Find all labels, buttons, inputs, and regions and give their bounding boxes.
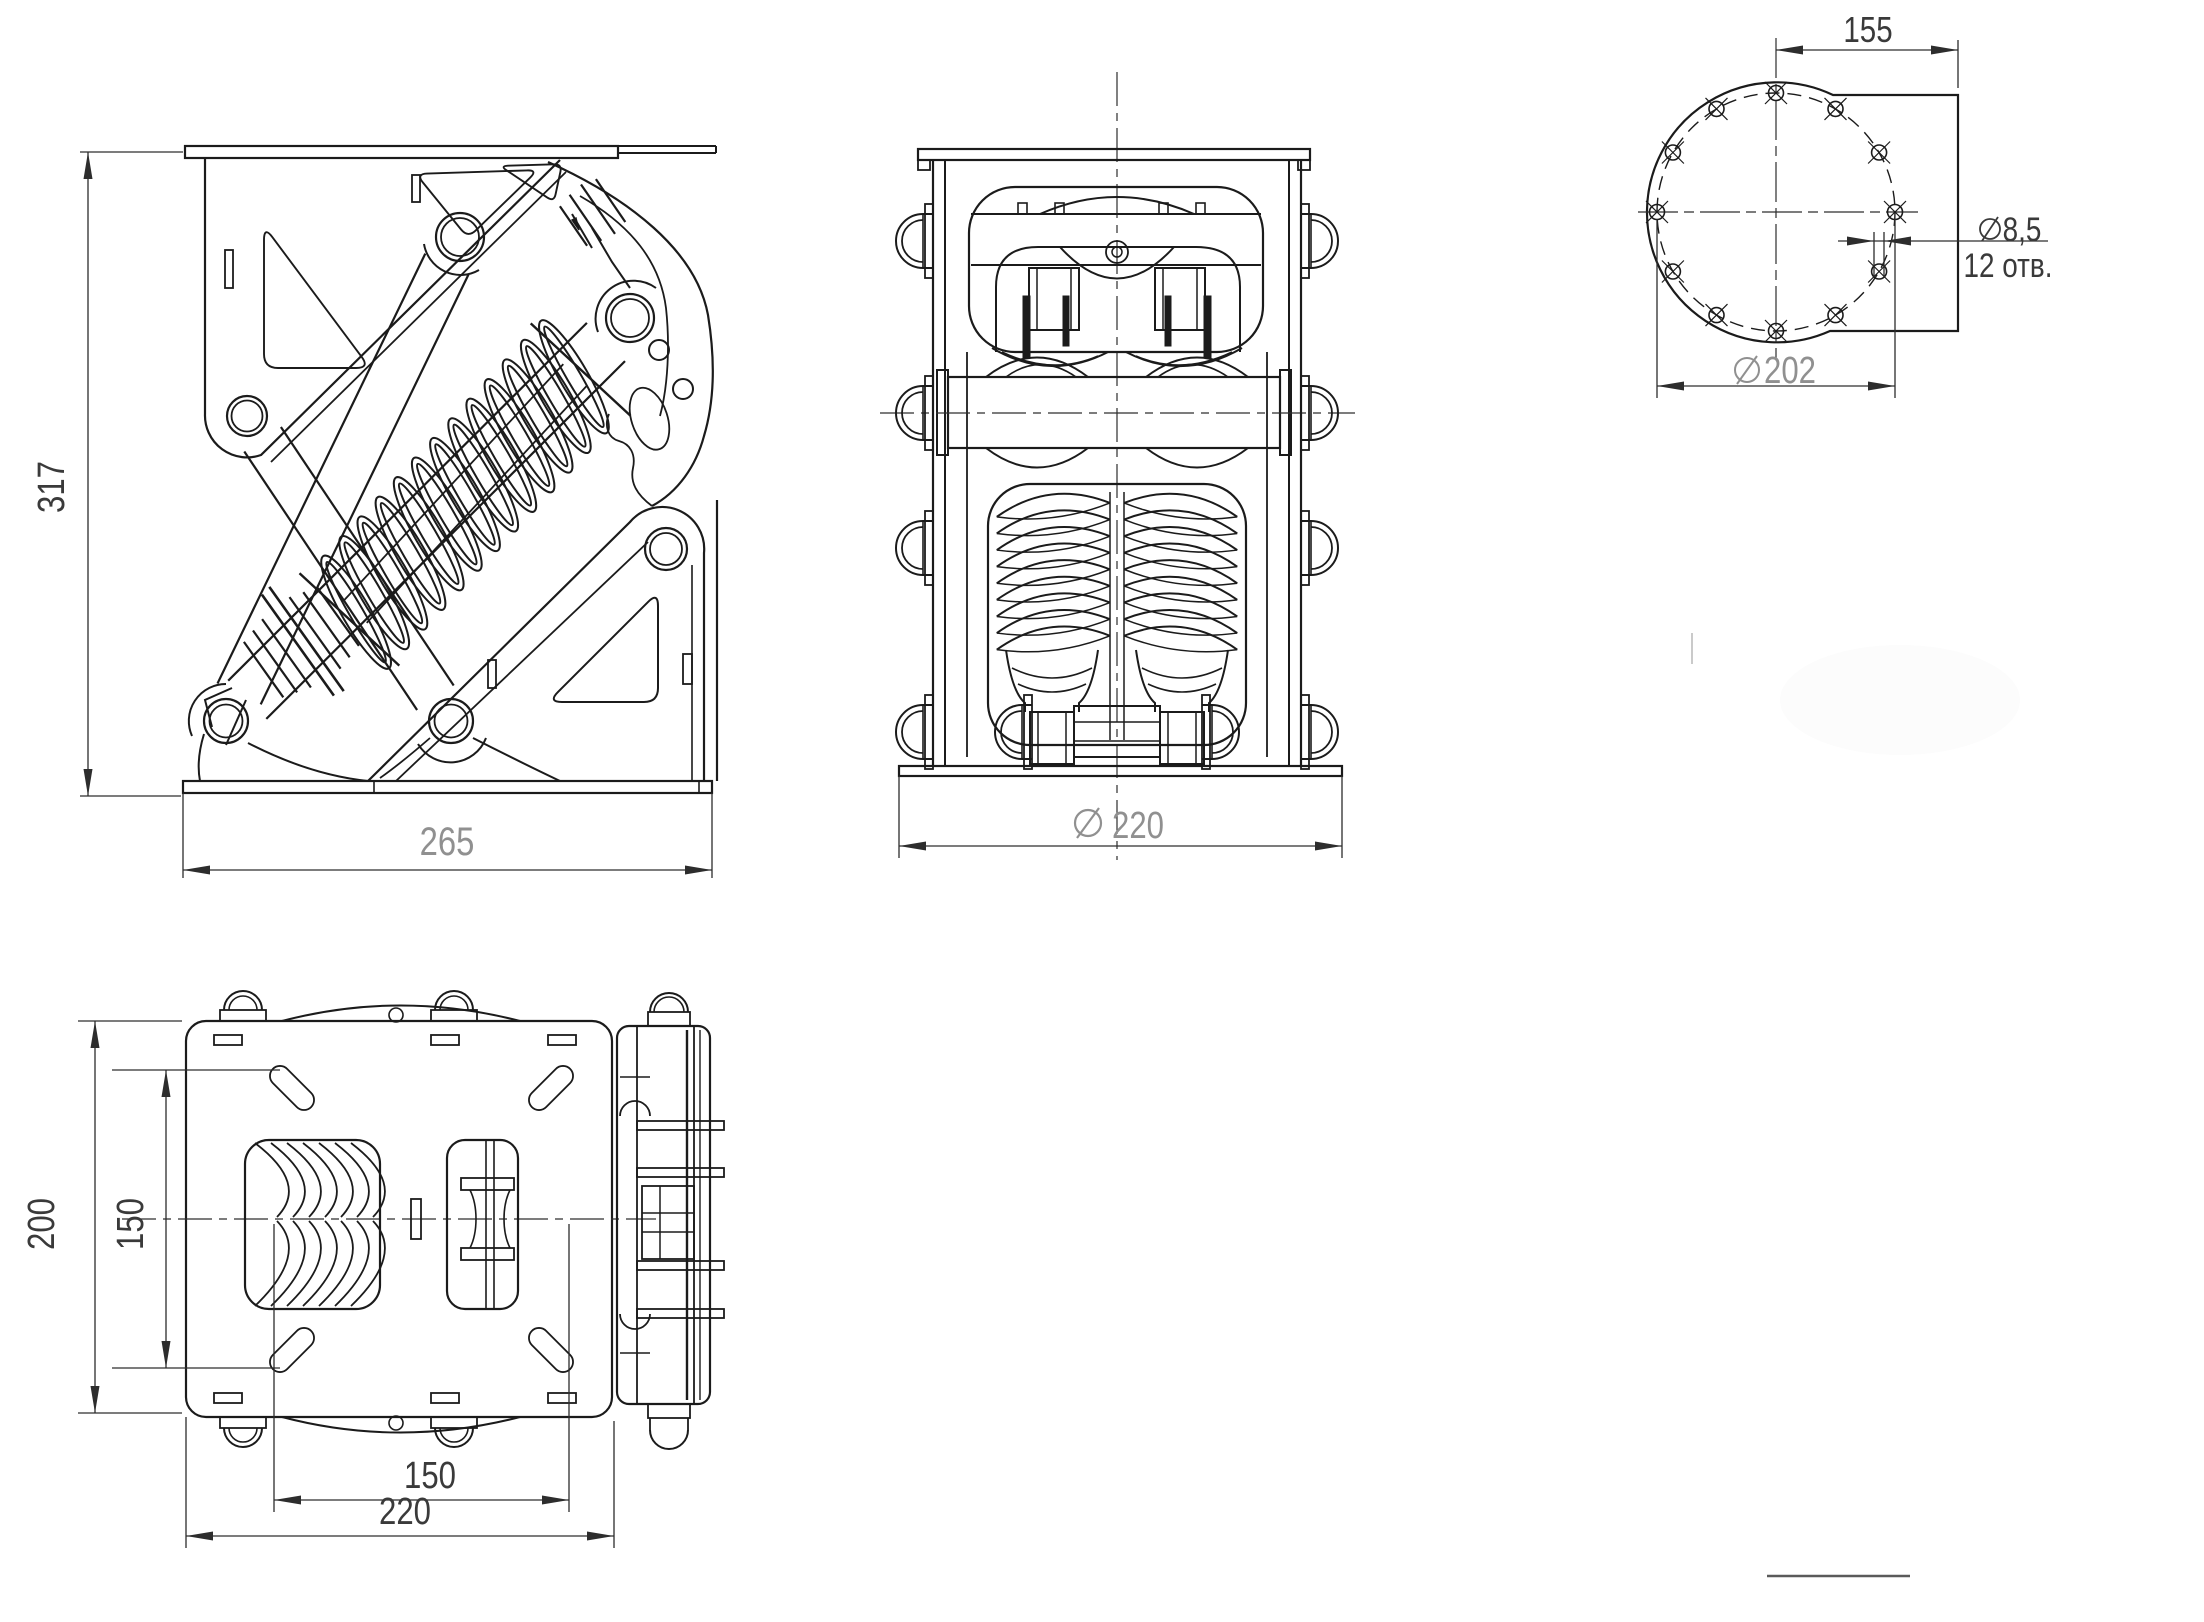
svg-text:202: 202: [1764, 350, 1816, 392]
svg-text:317: 317: [31, 461, 73, 513]
svg-text:150: 150: [110, 1198, 152, 1250]
svg-text:265: 265: [420, 819, 475, 864]
svg-text:220: 220: [379, 1491, 431, 1533]
svg-text:200: 200: [21, 1198, 63, 1250]
svg-text:220: 220: [1112, 805, 1164, 847]
svg-text:155: 155: [1843, 9, 1892, 49]
svg-text:12 отв.: 12 отв.: [1964, 246, 2053, 284]
svg-text:8,5: 8,5: [2003, 210, 2042, 248]
